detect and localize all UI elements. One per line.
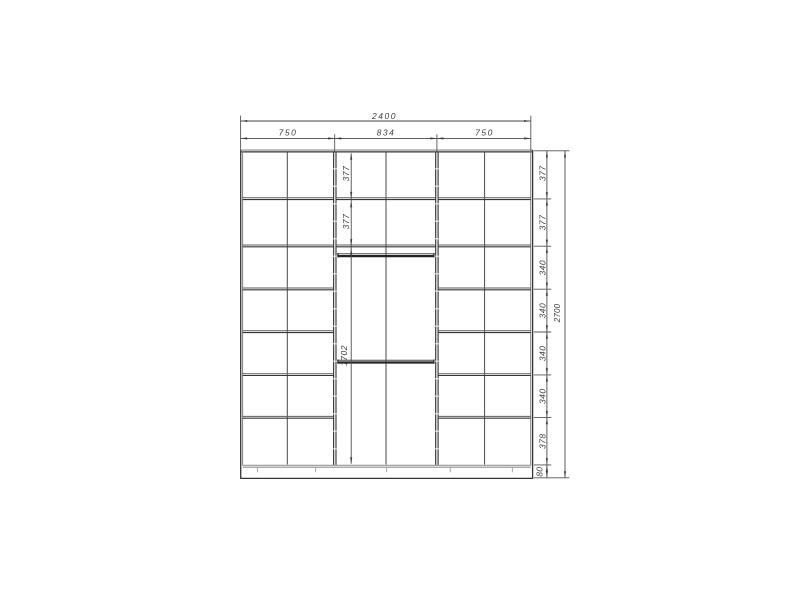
svg-text:378: 378	[537, 433, 547, 449]
svg-text:340: 340	[537, 388, 547, 404]
svg-text:1702: 1702	[339, 345, 349, 366]
svg-text:750: 750	[475, 128, 494, 138]
svg-text:340: 340	[537, 346, 547, 362]
svg-text:377: 377	[537, 165, 547, 181]
svg-text:80: 80	[535, 467, 545, 477]
svg-text:377: 377	[537, 215, 547, 231]
svg-text:2400: 2400	[371, 111, 397, 121]
svg-text:377: 377	[341, 214, 351, 230]
svg-text:377: 377	[341, 166, 351, 182]
svg-text:2700: 2700	[553, 303, 562, 323]
svg-text:750: 750	[279, 128, 298, 138]
svg-text:340: 340	[537, 303, 547, 319]
svg-text:340: 340	[537, 260, 547, 276]
svg-text:834: 834	[377, 128, 396, 138]
